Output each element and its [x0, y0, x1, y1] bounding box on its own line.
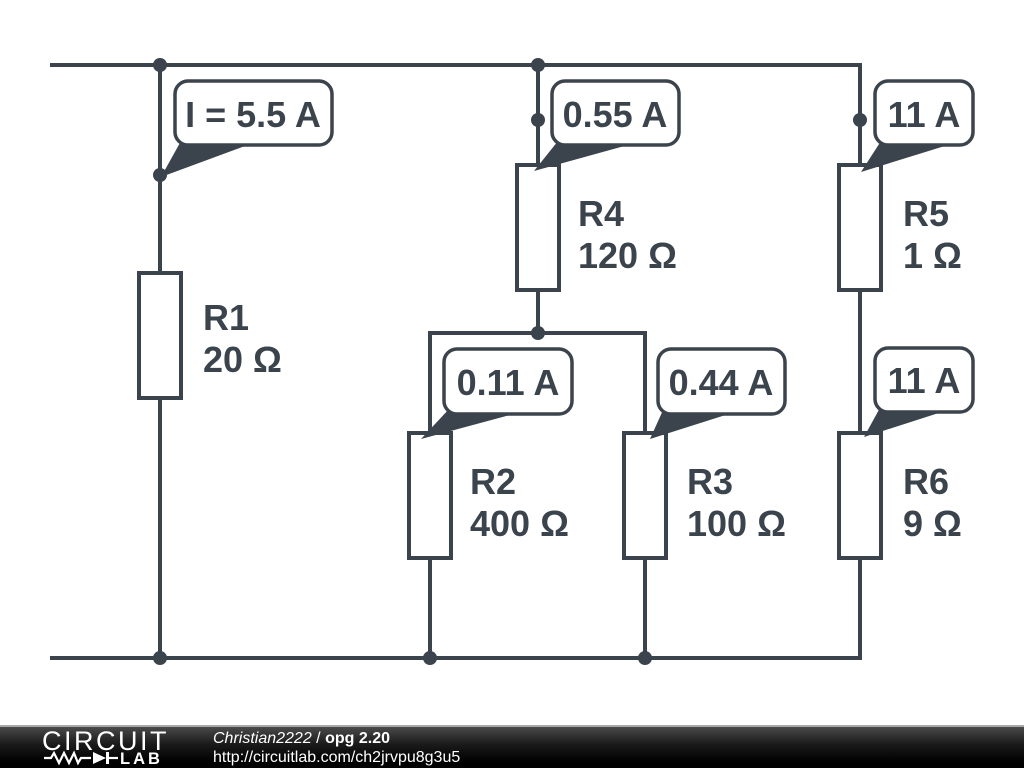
- author-name: Christian2222: [213, 730, 312, 747]
- wire-top-rail: [52, 65, 860, 165]
- callout-label-r4: 0.55 A: [563, 94, 668, 135]
- callout-label-r3: 0.44 A: [669, 362, 774, 403]
- current-callout-r3: 0.44 A: [650, 349, 785, 439]
- current-callout-r6: 11 A: [864, 348, 973, 437]
- circuitlab-schematic-export: R1 20 Ω R4 120 Ω R5 1 Ω R2 400 Ω R3 100 …: [0, 0, 1024, 768]
- resistor-r6: R6 9 Ω: [839, 433, 962, 558]
- current-callout-r5: 11 A: [861, 81, 973, 172]
- resistor-body-r3: [624, 433, 666, 558]
- resistor-value-r3: 100 Ω: [687, 503, 786, 544]
- junction-dot: [531, 326, 545, 340]
- attribution-line: Christian2222 / opg 2.20: [213, 729, 460, 748]
- work-title: opg 2.20: [325, 730, 390, 747]
- resistor-r1: R1 20 Ω: [139, 273, 282, 398]
- resistor-value-r5: 1 Ω: [903, 235, 962, 276]
- callout-label-r5: 11 A: [888, 94, 961, 135]
- resistor-value-r6: 9 Ω: [903, 503, 962, 544]
- probe-dot-r5: [853, 113, 867, 127]
- probe-dot-r1: [153, 168, 167, 182]
- schematic-canvas: R1 20 Ω R4 120 Ω R5 1 Ω R2 400 Ω R3 100 …: [0, 0, 1024, 725]
- resistor-body-r1: [139, 273, 181, 398]
- attribution-separator: /: [312, 730, 325, 747]
- resistor-body-r5: [839, 165, 881, 290]
- junction-dot: [531, 58, 545, 72]
- resistor-value-r4: 120 Ω: [578, 235, 677, 276]
- probe-dot-r4: [531, 113, 545, 127]
- resistor-value-r1: 20 Ω: [203, 339, 282, 380]
- resistor-body-r4: [517, 165, 559, 290]
- junction-dot: [153, 651, 167, 665]
- callout-label-r1: I = 5.5 A: [185, 94, 321, 135]
- callout-label-r2: 0.11 A: [457, 362, 560, 403]
- current-callout-r2: 0.11 A: [421, 349, 572, 439]
- resistor-r3: R3 100 Ω: [624, 433, 786, 558]
- footer-attribution: Christian2222 / opg 2.20 http://circuitl…: [213, 729, 460, 767]
- resistor-r2: R2 400 Ω: [409, 433, 569, 558]
- resistor-name-r4: R4: [578, 193, 624, 234]
- wire-bottom-rail: [52, 558, 860, 658]
- junction-dot: [423, 651, 437, 665]
- junction-dot: [638, 651, 652, 665]
- current-callout-r4: 0.55 A: [534, 81, 679, 171]
- resistor-body-r6: [839, 433, 881, 558]
- current-callout-r1: I = 5.5 A: [161, 81, 332, 177]
- resistor-name-r5: R5: [903, 193, 949, 234]
- resistor-name-r3: R3: [687, 461, 733, 502]
- resistor-name-r2: R2: [470, 461, 516, 502]
- footer-watermark-bar: CIRCUIT LAB Christian2222 / opg 2.20 htt…: [0, 725, 1024, 768]
- resistor-name-r6: R6: [903, 461, 949, 502]
- resistor-r5: R5 1 Ω: [839, 165, 962, 290]
- resistor-body-r2: [409, 433, 451, 558]
- resistor-r4: R4 120 Ω: [517, 165, 677, 290]
- callout-label-r6: 11 A: [888, 360, 961, 401]
- junction-dot: [153, 58, 167, 72]
- circuit-url: http://circuitlab.com/ch2jrvpu8g3u5: [213, 748, 460, 767]
- resistor-name-r1: R1: [203, 297, 249, 338]
- logo-lab-text: LAB: [120, 750, 163, 767]
- resistor-value-r2: 400 Ω: [470, 503, 569, 544]
- circuitlab-logo: CIRCUIT LAB: [42, 729, 192, 767]
